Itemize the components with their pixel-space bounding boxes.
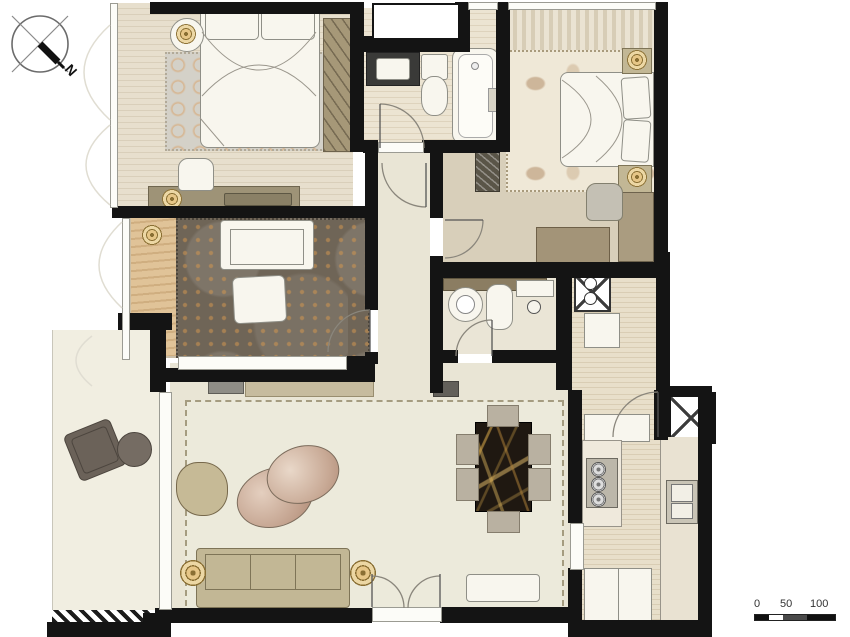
wall-segment: [150, 330, 166, 392]
scale-segment: [755, 615, 769, 620]
burner: [591, 492, 606, 507]
scale-segment: [783, 615, 807, 620]
dining-chair: [528, 468, 551, 501]
dining-chair: [456, 468, 479, 501]
sofa-living: [196, 548, 350, 608]
wall-segment: [654, 390, 668, 440]
burner: [591, 477, 606, 492]
wall-segment: [155, 608, 372, 623]
shower-icon: [527, 300, 541, 314]
wall-segment: [143, 613, 171, 637]
kitchen-pass-opening: [570, 523, 584, 570]
window-study: [122, 218, 130, 360]
compass-north-label: N: [62, 61, 81, 79]
sink-bathroom1: [376, 58, 410, 80]
gold-lamp-icon: [176, 24, 196, 44]
wall-segment: [568, 390, 582, 523]
gas-stove-icon: [586, 458, 618, 508]
armchair-living: [176, 462, 228, 516]
sofa-seats: [205, 554, 341, 590]
sofa-seat: [205, 554, 251, 590]
scale-segment: [769, 615, 783, 620]
floor-lamp-icon: [176, 556, 210, 590]
window-living-left: [159, 392, 172, 610]
balcony-floor: [52, 330, 161, 622]
scale-tick-100: 100: [810, 598, 828, 610]
kitchen-counter-right: [660, 437, 699, 622]
corridor-floor: [378, 150, 430, 395]
dresser-master: [618, 192, 654, 262]
wall-segment: [556, 268, 572, 390]
scale-tick-50: 50: [780, 598, 792, 610]
side-table-study: [232, 275, 287, 325]
wall-segment: [430, 152, 443, 218]
light-well-recess: [372, 3, 460, 40]
kitchen-cabinet-bottom: [618, 568, 652, 622]
wall-segment: [492, 350, 572, 363]
wall-segment: [698, 390, 712, 637]
sofa-seat: [251, 554, 296, 590]
sink-basin: [671, 484, 693, 502]
bench-master: [536, 227, 610, 264]
wall-segment: [496, 2, 510, 152]
round-sink-inner: [456, 295, 475, 314]
scale-bar-icon: 0 50 100: [752, 598, 844, 628]
wall-segment: [430, 363, 443, 393]
pillow: [621, 76, 652, 120]
toilet-bowl: [421, 76, 448, 116]
magazine-rack: [475, 152, 500, 192]
window-bathroom1: [468, 2, 498, 10]
console-bench-entry: [466, 574, 540, 602]
gold-lamp-icon: [627, 50, 647, 70]
toilet-bathroom2: [486, 284, 513, 330]
gold-lamp-icon: [627, 167, 647, 187]
double-sink-icon: [666, 480, 698, 524]
dining-chair: [528, 434, 551, 465]
chair-master: [586, 183, 623, 221]
window-bedroom1: [110, 3, 118, 208]
bathtub-drain: [471, 62, 479, 70]
scale-bar-segments: [754, 614, 836, 621]
floor-plan-canvas: N 0 50 100: [0, 0, 850, 637]
entry-door-threshold: [372, 607, 442, 622]
bathroom2-cabinet: [516, 280, 554, 297]
wall-segment: [150, 2, 364, 14]
wall-segment: [656, 252, 670, 397]
ceiling-lamp-icon: [141, 224, 163, 246]
wall-segment: [440, 607, 570, 623]
wall-segment: [568, 620, 712, 637]
sofa-seat: [296, 554, 341, 590]
kitchen-cabinet-bottom: [584, 568, 619, 622]
floor-lamp-icon: [346, 556, 380, 590]
scale-segment: [807, 615, 835, 620]
wall-segment: [350, 2, 364, 152]
laundry-counter: [584, 313, 620, 348]
wall-segment: [345, 356, 375, 382]
sink-basin: [671, 503, 693, 519]
door-threshold-corridor: [378, 142, 424, 153]
compass-north-icon: [12, 16, 68, 72]
wall-segment: [365, 152, 378, 310]
wall-segment: [112, 206, 375, 218]
wall-segment: [430, 262, 668, 278]
wall-segment: [47, 622, 153, 637]
washer-dial: [584, 292, 597, 305]
sofa-study-seat: [230, 229, 304, 265]
plant-icon: [133, 14, 155, 48]
wall-segment: [654, 2, 668, 268]
scale-tick-0: 0: [754, 598, 760, 610]
wall-segment: [165, 368, 375, 382]
dining-chair: [487, 511, 520, 533]
lounge-cushion: [70, 425, 119, 474]
window-master: [508, 2, 656, 10]
plant-icon: [616, 10, 646, 34]
wardrobe-bedroom1: [323, 18, 352, 152]
desk-tray: [224, 193, 292, 206]
washer-dial: [584, 277, 597, 290]
dining-chair: [456, 434, 479, 465]
dining-table-marble: [475, 422, 532, 512]
pillow: [621, 119, 652, 163]
plant-icon: [120, 178, 140, 208]
window-study-living: [178, 356, 347, 370]
burner: [591, 462, 606, 477]
desk-chair-bedroom1: [178, 158, 214, 191]
wall-segment: [430, 350, 458, 363]
wall-segment: [666, 386, 712, 394]
sofa-study: [220, 220, 314, 270]
dining-chair: [487, 405, 519, 427]
side-table-balcony: [117, 432, 152, 467]
kitchen-cabinet-top: [584, 414, 650, 442]
